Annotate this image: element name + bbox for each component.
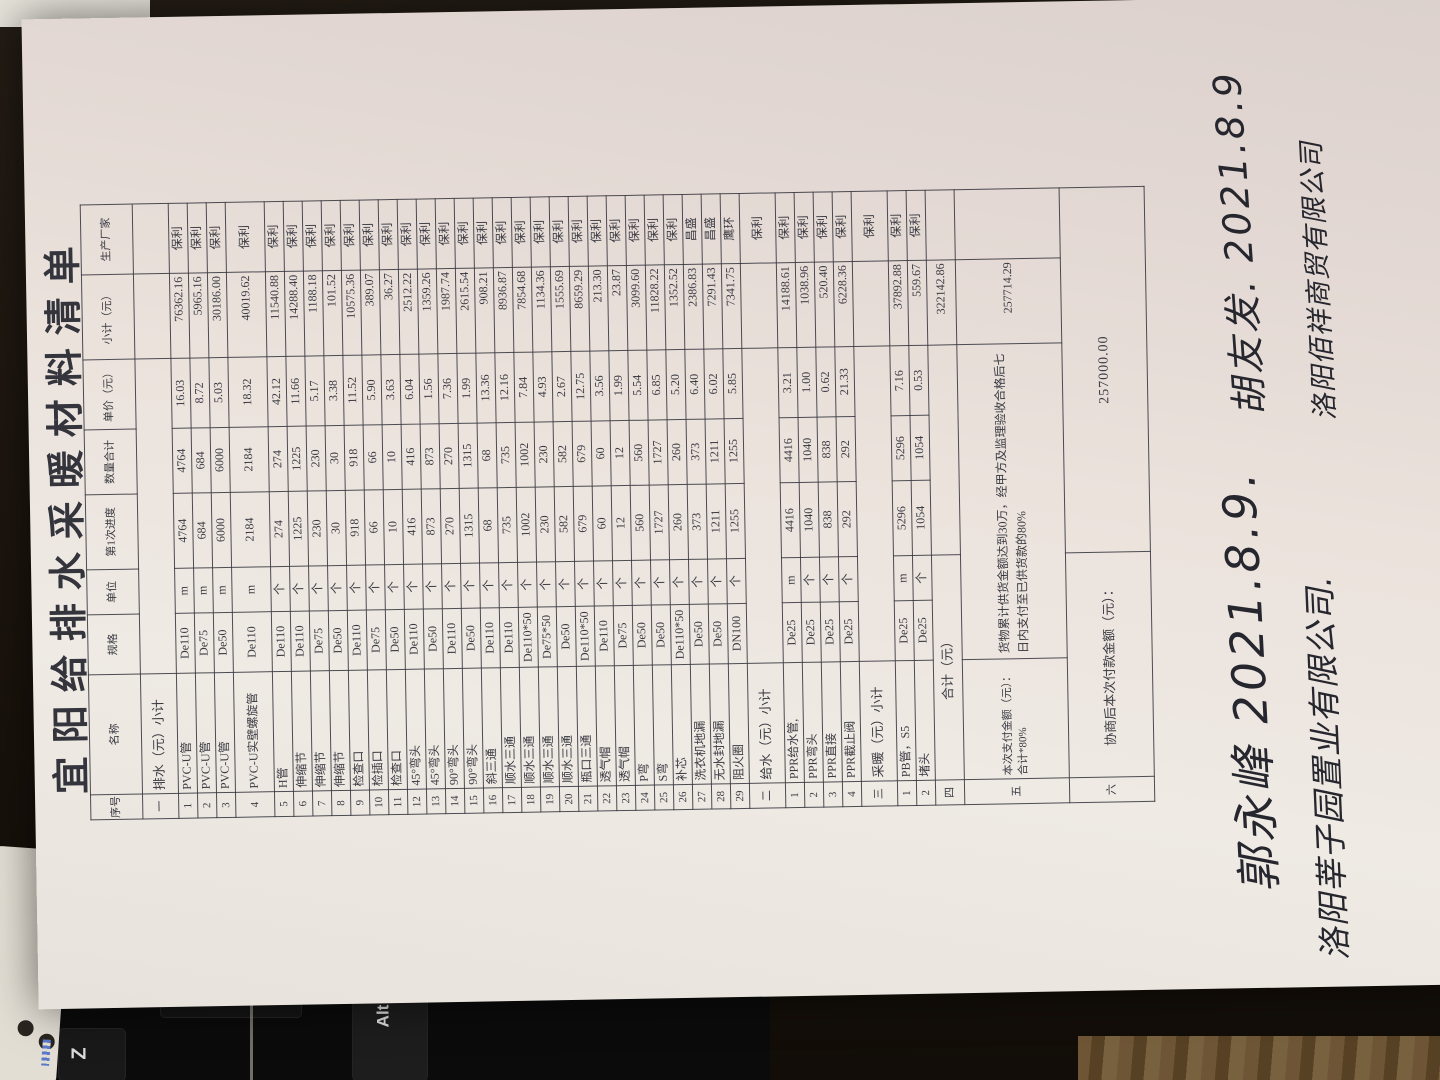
cell: 无水封地漏 (709, 664, 730, 784)
cell: 25 (654, 785, 673, 810)
cell: 0.62 (816, 347, 836, 417)
cell: 918 (344, 425, 364, 490)
table-row: 五本次支付金额（元）：合计*80%货物累计供货金额达到30万，经甲方及监理验收合… (954, 188, 1070, 805)
cell: 个 (594, 561, 614, 606)
cell: De75*50 (537, 607, 557, 667)
cell: 1315 (459, 488, 479, 563)
cell: 908.21 (474, 268, 494, 353)
cell: 二 (749, 783, 785, 809)
cell: 规格 (87, 614, 140, 675)
cell: 270 (440, 488, 460, 563)
cell: 873 (420, 424, 440, 489)
cell: 17 (502, 787, 521, 812)
cell: De110 (499, 607, 519, 667)
cell: 小计（元） (81, 274, 134, 360)
cell: 2184 (230, 492, 270, 568)
cell: 23 (616, 785, 635, 810)
cell: 3.56 (590, 351, 610, 421)
cell: 45°弯头 (405, 669, 426, 789)
cell: 11540.88 (265, 271, 285, 356)
cell: 保利 (359, 200, 379, 270)
cell: 15 (464, 788, 483, 813)
cell: 274 (269, 491, 289, 566)
cell: 协商后本次付款金额（元）： (1065, 551, 1154, 777)
paper-document: 宜阳给排水采暖材料清单 序号名称规格单位第1次进度数量合计单价（元）小计（元）生… (21, 0, 1440, 1009)
materials-table-wrap: 序号名称规格单位第1次进度数量合计单价（元）小计（元）生产厂家一排水（元）小计1… (80, 186, 1156, 820)
cell: 1134.36 (531, 267, 551, 352)
cell: 838 (818, 482, 838, 557)
cell: 213.30 (588, 266, 608, 351)
cell: 373 (686, 419, 706, 484)
cell: De25 (782, 602, 802, 662)
cell: 3 (823, 782, 842, 807)
cell: 4764 (173, 493, 193, 568)
cell: 68 (477, 423, 497, 488)
signature-buyer: 郭永峰 2021.8.9. (1202, 468, 1290, 895)
cell: 顺水三通 (500, 667, 521, 787)
cell: 37892.88 (888, 261, 908, 346)
cell: De110 (290, 611, 310, 671)
cell: 顺水三通 (519, 667, 540, 787)
cell: 个 (461, 563, 481, 608)
cell: 保利 (851, 191, 888, 262)
cell: De50 (423, 609, 443, 669)
cell: 伸缩节 (329, 670, 350, 790)
cell: 5965.16 (188, 273, 208, 358)
cell: 12.16 (495, 352, 515, 422)
cell: 保利 (206, 202, 226, 272)
cell: 36.27 (379, 269, 399, 354)
cell: 顺水三通 (538, 667, 559, 787)
cell: 1054 (910, 415, 930, 480)
cell: 生产厂家 (80, 204, 133, 275)
cell: 1.56 (419, 354, 439, 424)
cell: De50 (708, 604, 728, 664)
cell: De110 (480, 608, 500, 668)
cell: 270 (439, 423, 459, 488)
cell: 2184 (229, 427, 269, 493)
cell: 560 (630, 485, 650, 560)
cell: 2615.54 (455, 268, 475, 353)
cell: 四 (935, 780, 964, 806)
cell: 个 (499, 562, 519, 607)
cell: 3099.60 (626, 265, 646, 350)
cell: 5.85 (723, 348, 743, 418)
cell: 给水（元）小计 (747, 663, 785, 784)
cell: 5.20 (666, 349, 686, 419)
cell: 735 (497, 487, 517, 562)
cell: 昌盛 (682, 194, 702, 264)
cell: 684 (192, 493, 212, 568)
cell: 13.36 (476, 353, 496, 423)
cell: 保利 (340, 200, 360, 270)
cell: 个 (556, 561, 576, 606)
cell: 个 (912, 555, 932, 600)
cell: 257000.00 (1059, 186, 1150, 552)
cell: 9 (350, 790, 369, 815)
cell: 1002 (515, 422, 535, 487)
cell: 4764 (172, 428, 192, 493)
company-supplier: 洛阳佰祥商贸有限公司 (1289, 140, 1343, 422)
cell: 1040 (798, 417, 818, 482)
cell: De75 (613, 605, 633, 665)
cell: 5.54 (628, 350, 648, 420)
cell: m (893, 555, 913, 600)
cell: 679 (572, 421, 592, 486)
cell: 保利 (416, 199, 436, 269)
cell: 1.99 (609, 350, 629, 420)
cell: 5296 (892, 481, 912, 556)
cell: 个 (650, 560, 670, 605)
cell: 检插口 (367, 670, 388, 790)
cell: PVC-U管 (176, 673, 197, 793)
cell: 230 (307, 491, 327, 566)
cell: 68 (478, 488, 498, 563)
cell: 1225 (288, 491, 308, 566)
cell: PPR弯头 (802, 662, 823, 782)
materials-table-body: 序号名称规格单位第1次进度数量合计单价（元）小计（元）生产厂家一排水（元）小计1… (80, 186, 1155, 819)
cell: 8 (331, 790, 350, 815)
cell: 1.00 (797, 347, 817, 417)
cell: 30 (326, 490, 346, 565)
cell: De25 (839, 601, 859, 661)
cell: 12 (611, 485, 631, 560)
cell: 伸缩节 (291, 671, 312, 791)
cell: 保利 (302, 201, 322, 271)
cell: 个 (423, 564, 443, 609)
cell: 8659.29 (569, 266, 589, 351)
cell: 30186.00 (207, 272, 227, 357)
cell: 559.67 (907, 260, 927, 345)
cell: 伸缩节 (310, 671, 331, 791)
cell: 373 (687, 484, 707, 559)
cell: De50 (385, 609, 405, 669)
cell: 1002 (516, 487, 536, 562)
company-buyer: 洛阳莘子园置业有限公司. (1292, 574, 1357, 961)
cell: 1315 (458, 423, 478, 488)
cell: 6.85 (647, 350, 667, 420)
cell: 28 (711, 784, 730, 809)
cell: 3 (216, 792, 235, 817)
cell (133, 273, 170, 359)
cell: 2 (197, 793, 216, 818)
cell: 检查口 (348, 670, 369, 790)
cell: 采暖（元）小计 (859, 661, 897, 782)
cell: De110*50 (518, 607, 538, 667)
cell: 7.16 (890, 346, 910, 416)
cell: 1359.26 (417, 269, 437, 354)
cell: 20 (559, 786, 578, 811)
cell: 274 (268, 426, 288, 491)
cell: 阻火圈 (728, 663, 749, 783)
cell: 679 (573, 486, 593, 561)
cell: De75 (309, 611, 329, 671)
cell: PVC-U管 (214, 672, 235, 792)
cell: m (194, 568, 214, 613)
cell (742, 348, 783, 664)
cell: 个 (309, 566, 329, 611)
cell: 透气帽 (614, 665, 635, 785)
cell: De50 (556, 606, 576, 666)
cell (954, 188, 1060, 260)
keyboard-key-z-label: Z (69, 1047, 92, 1059)
cell (852, 261, 889, 347)
cell: 六 (1069, 776, 1154, 802)
cell: 5.03 (209, 357, 229, 427)
cell: 22 (597, 786, 616, 811)
cell: 66 (364, 490, 384, 565)
cell: 1211 (705, 419, 725, 484)
cell: 昌盛 (701, 194, 721, 264)
cell: De75 (194, 613, 214, 673)
cell: 7854.68 (512, 267, 532, 352)
cell: 检查口 (386, 669, 407, 789)
cell: 90°弯头 (462, 668, 483, 788)
cell: De50 (632, 605, 652, 665)
cell: 单位 (87, 569, 140, 615)
cell: 1211 (706, 484, 726, 559)
cell: 补芯 (671, 664, 692, 784)
cell: 918 (345, 490, 365, 565)
cell: 7 (312, 791, 331, 816)
cell: De110 (175, 613, 195, 673)
cell: 个 (385, 564, 405, 609)
cell: 个 (800, 557, 820, 602)
cell: 保利 (739, 193, 776, 264)
cell: 257714.29 (955, 258, 1061, 345)
cell: 11828.22 (645, 265, 665, 350)
cell: 序号 (91, 794, 143, 820)
cell: 6.02 (704, 349, 724, 419)
cell: 保利 (511, 197, 531, 267)
cell: H管 (272, 671, 293, 791)
cell: 735 (496, 422, 516, 487)
cell: 2512.22 (398, 269, 418, 354)
cell: 个 (838, 556, 858, 601)
cell: De50 (328, 610, 348, 670)
cell: P弯 (633, 665, 654, 785)
cell: De110*50 (575, 606, 595, 666)
cell: 416 (401, 424, 421, 489)
cell: 101.52 (322, 270, 342, 355)
cell: 合计（元） (931, 555, 964, 780)
cell: 保利 (568, 196, 588, 266)
cell: PPR截止阀 (840, 661, 861, 781)
cell: 洗衣机地漏 (690, 664, 711, 784)
cell: 11 (388, 789, 407, 814)
cell: De110 (271, 611, 291, 671)
cell: 7.36 (438, 353, 458, 423)
cell: 保利 (644, 195, 664, 265)
cell: 684 (191, 428, 211, 493)
cell: 26 (673, 784, 692, 809)
cell: 1727 (648, 420, 668, 485)
cell: 30 (325, 425, 345, 490)
cell: 389.07 (360, 270, 380, 355)
cell: 个 (669, 559, 689, 604)
cell: 个 (537, 562, 557, 607)
cell: 18 (521, 787, 540, 812)
cell: 保利 (397, 199, 417, 269)
cell: PB管，S5 (895, 660, 916, 780)
cell: 个 (707, 559, 727, 604)
cell: 10575.36 (341, 270, 361, 355)
cell: 保利 (663, 194, 683, 264)
cell: De25 (820, 602, 840, 662)
cell: 个 (347, 565, 367, 610)
cell: 23.87 (607, 265, 627, 350)
cell: 第1次进度 (85, 494, 138, 570)
cell: 1 (897, 780, 916, 805)
cell: 保利 (606, 195, 626, 265)
cell: De110 (347, 610, 367, 670)
cell: 一 (143, 793, 179, 819)
cell: 保利 (435, 198, 455, 268)
cell: 保利 (530, 197, 550, 267)
cell: 保利 (492, 197, 512, 267)
cell (925, 190, 955, 260)
cell: 1040 (799, 482, 819, 557)
cell: 6.04 (400, 354, 420, 424)
cell: 本次支付金额（元）：合计*80% (962, 658, 1069, 780)
cell (132, 203, 169, 274)
wood-desk (1078, 1036, 1440, 1080)
cell: 保利 (775, 193, 795, 263)
cell: 保利 (378, 199, 398, 269)
cell: 3.21 (778, 347, 798, 417)
cell: 18.32 (228, 357, 268, 428)
cell: 322142.86 (926, 260, 956, 345)
device-stripe (41, 1039, 51, 1065)
photo-background: Z Alt 宜阳给排水采暖材料清单 序号名称规格单位第1次进度数量合计单价（元）… (0, 0, 1440, 1080)
cell: DN100 (727, 603, 747, 663)
cell: 6000 (210, 427, 230, 492)
cell: 三 (861, 781, 897, 807)
cell: De110 (404, 609, 424, 669)
cell: 42.12 (267, 356, 287, 426)
cell: 单价（元） (83, 359, 136, 430)
cell: 60 (591, 421, 611, 486)
cell: 五 (964, 778, 1069, 805)
cell: De110 (594, 606, 614, 666)
cell: 7.84 (514, 352, 534, 422)
cell: 保利 (473, 198, 493, 268)
cell: 个 (442, 563, 462, 608)
cell: 5.90 (362, 355, 382, 425)
cell: 1225 (287, 426, 307, 491)
cell: 14188.61 (776, 262, 796, 347)
cell: 14 (445, 788, 464, 813)
cell (740, 263, 777, 349)
cell: 24 (635, 785, 654, 810)
cell: 7291.43 (702, 264, 722, 349)
cell: 10 (383, 489, 403, 564)
cell: 个 (688, 559, 708, 604)
cell: 保利 (321, 200, 341, 270)
cell: 1255 (724, 418, 744, 483)
cell: De50 (213, 612, 233, 672)
cell: 保利 (454, 198, 474, 268)
cell: 保利 (549, 196, 569, 266)
cell: De110 (442, 608, 462, 668)
cell: 1054 (911, 480, 931, 555)
cell: 个 (290, 566, 310, 611)
cell: 瓶口三通 (576, 666, 597, 786)
device-hole (17, 1020, 34, 1037)
cell: 16 (483, 788, 502, 813)
cell: 4416 (780, 482, 800, 557)
cell: 838 (817, 417, 837, 482)
cell: 292 (837, 481, 857, 556)
cell: 520.40 (814, 262, 834, 347)
cell: 1987.74 (436, 268, 456, 353)
cell: 4 (235, 792, 274, 818)
cell: 2386.83 (683, 264, 703, 349)
cell: 个 (632, 560, 652, 605)
cell: 0.53 (909, 345, 929, 415)
cell: 个 (726, 558, 746, 603)
cell (928, 345, 961, 555)
cell: 保利 (794, 192, 814, 262)
cell: 873 (421, 489, 441, 564)
cell: 5 (274, 791, 293, 816)
cell: 2 (916, 780, 935, 805)
cell: 21 (578, 786, 597, 811)
cell: 7341.75 (721, 263, 741, 348)
cell: 66 (363, 425, 383, 490)
cell: 230 (306, 426, 326, 491)
cell: 1255 (725, 483, 745, 558)
cell: 保利 (283, 201, 303, 271)
cell: 6 (293, 791, 312, 816)
cell: 45°弯头 (424, 669, 445, 789)
cell: De25 (894, 600, 914, 660)
cell: 6000 (211, 492, 231, 567)
table-row: 六协商后本次付款金额（元）：257000.00 (1059, 186, 1155, 802)
cell: 582 (554, 486, 574, 561)
cell: S弯 (652, 665, 673, 785)
cell: 斜三通 (481, 668, 502, 788)
cell: 个 (271, 566, 291, 611)
cell: 4.93 (533, 352, 553, 422)
cell: m (781, 557, 801, 602)
cell: 16.03 (171, 358, 191, 428)
cell: 1188.18 (303, 271, 323, 356)
cell: 保利 (625, 195, 645, 265)
cell: 5296 (891, 416, 911, 481)
cell: 12.75 (571, 351, 591, 421)
cell: 保利 (906, 190, 926, 260)
cell: 名称 (88, 674, 142, 795)
cell: 27 (692, 784, 711, 809)
cell: 保利 (587, 196, 607, 266)
cell: 6.40 (685, 349, 705, 419)
cell: 保利 (168, 203, 188, 273)
cell: De75 (366, 610, 386, 670)
cell: 6228.36 (833, 262, 853, 347)
cell: 鹰环 (720, 193, 740, 263)
cell: 60 (592, 486, 612, 561)
cell: 14288.40 (284, 271, 304, 356)
cell: De110 (232, 612, 272, 673)
cell (854, 346, 895, 662)
cell: 582 (553, 421, 573, 486)
cell: 292 (836, 416, 856, 481)
cell: 29 (730, 783, 749, 808)
cell: 416 (402, 489, 422, 564)
cell: 560 (629, 420, 649, 485)
cell: 10 (382, 424, 402, 489)
